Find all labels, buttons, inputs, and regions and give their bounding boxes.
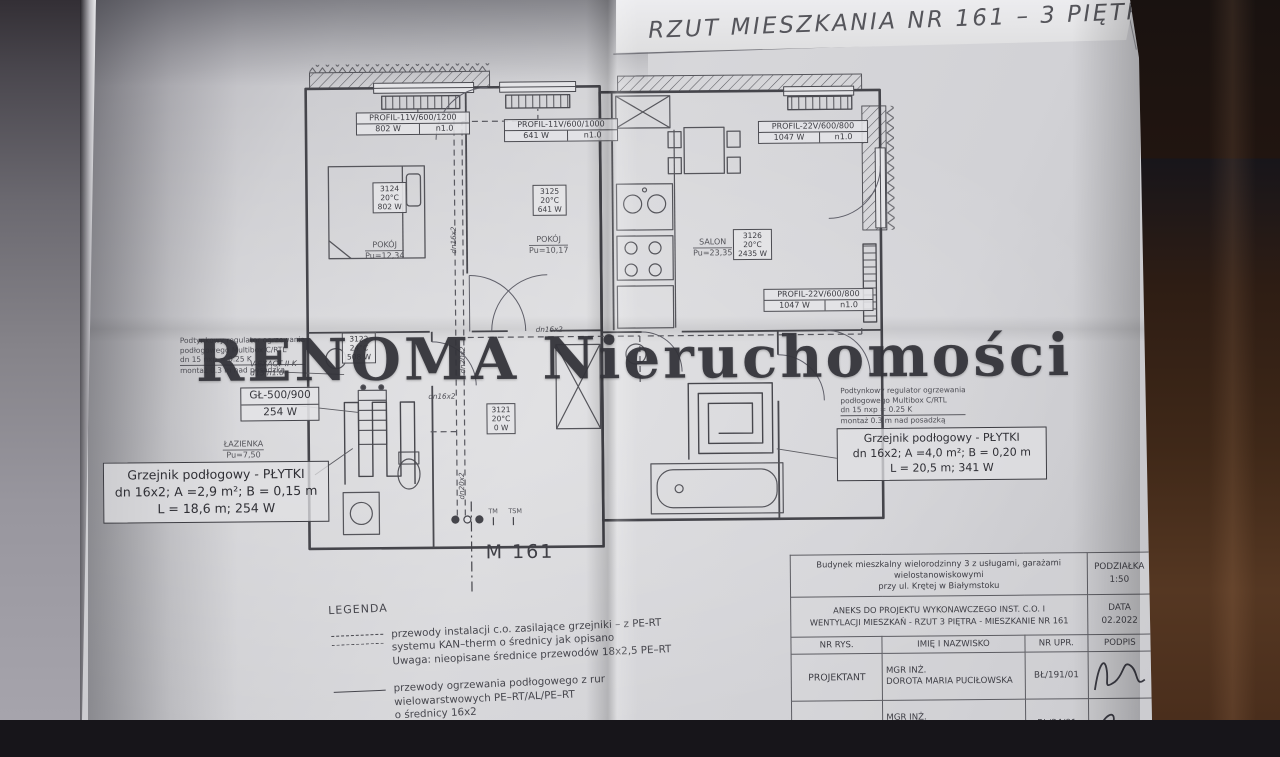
building-description-cell: Budynek mieszkalny wielorodzinny 3 z usł… [790,553,1087,598]
radiator-label-1: PROFIL-11V/600/1200 802 Wn1.0 [356,111,470,135]
fh-line: L = 18,6 m; 254 W [110,500,322,519]
riser-marker-tsm: TSM [508,507,522,515]
thermostat-power: 641 W [538,205,562,214]
note-line: montaż 0.3 m nad posadzką [840,414,965,426]
room-label-lazienka: ŁAZIENKA Pu=7,50 [223,439,265,460]
note-line: podłogowego Multibox C/RTL [840,395,965,406]
riser-marker-tm: TM [488,507,498,515]
radiator-label-3: PROFIL-22V/600/800 1047 Wn1.0 [758,120,868,144]
thermostat-id: 3124 [377,184,401,193]
legend-item-2: przewody ogrzewania podłogowego z rur wi… [331,667,752,725]
legend-symbol-dashed [331,629,384,646]
radiator-flow: n1.0 [420,123,469,133]
person-name: DOROTA MARIA PUCIŁOWSKA [886,676,1021,688]
radiator-power: 1047 W [759,132,820,143]
fh-line: dn 16x2; A =4,0 m²; B = 0,20 m [843,445,1041,462]
fh-line: dn 16x2; A =2,9 m²; B = 0,15 m [110,483,322,502]
person-name: KRAWCZYK [886,723,1021,735]
regulator-note-right: Podtynkowy regulator ogrzewania podłogow… [840,385,966,426]
room-label-pokoj-1: POKÓJ Pu=12,34 [365,240,405,261]
subject-line: WENTYLACJI MIESZKAŃ - RZUT 3 PIĘTRA - MI… [794,615,1084,629]
thermostat-power: 802 W [378,202,402,211]
name-cell: MGR INŻ. DOROTA MARIA PUCIŁOWSKA [882,652,1025,700]
fh-line: Grzejnik podłogowy - PŁYTKI [110,466,322,485]
radiator-power: 641 W [505,131,568,142]
radiator-flow: n1.0 [825,300,872,310]
fh-line: L = 20,5 m; 341 W [843,460,1041,477]
radiator-power: 802 W [357,124,420,135]
thermostat-id: 3126 [738,231,767,240]
legend-symbol-solid [333,683,385,693]
room-area: Pu=12,34 [365,251,404,261]
legend: LEGENDA przewody instalacji c.o. zasilaj… [328,586,753,739]
thermostat-id: 3121 [491,405,510,414]
legend-item-1: przewody instalacji c.o. zasilające grze… [329,613,750,671]
dining-table-symbol [668,127,740,174]
floor-heating-box-right: Grzejnik podłogowy - PŁYTKI dn 16x2; A =… [837,426,1047,480]
towel-radiator-power: 254 W [241,404,319,420]
room-label-pokoj-2: POKÓJ Pu=10,17 [529,235,569,256]
col-header: NR RYS. [791,636,882,654]
fh-line: Grzejnik podłogowy - PŁYTKI [843,431,1041,448]
building-line: Budynek mieszkalny wielorodzinny 3 z usł… [794,557,1084,582]
role-cell: PROJEKTANT [791,653,883,701]
thermostat-temp: 20°C [538,196,562,205]
paper-shadow-right [1072,0,1140,720]
thermostat-3121: 3121 20°C 0 W [486,403,515,434]
thermostat-id: 3125 [537,187,561,196]
unit-number-label: M 161 [486,541,555,564]
role-cell: SPRAWDZAJĄCY [791,700,883,749]
thermostat-temp: 20°C [378,193,402,202]
room-name: SALON [693,237,732,248]
thermostat-3125: 3125 20°C 641 W [532,185,566,216]
room-name: POKÓJ [529,235,568,246]
subject-cell: ANEKS DO PROJEKTU WYKONAWCZEGO INST. C.O… [791,595,1088,638]
floor-heating-box-left: Grzejnik podłogowy - PŁYTKI dn 16x2; A =… [103,461,330,524]
radiator-flow: n1.0 [820,132,867,142]
person-title: MGR INŻ. [886,712,1021,724]
room-name: ŁAZIENKA [223,439,265,450]
radiator-label-4: PROFIL-22V/600/800 1047 Wn1.0 [763,288,873,312]
thermostat-power: 0 W [492,423,511,432]
thermostat-3124: 3124 20°C 802 W [372,182,406,213]
room-area: Pu=10,17 [529,246,568,256]
room-name: POKÓJ [365,240,404,251]
name-cell: MGR INŻ. KRAWCZYK [883,699,1026,748]
thermostat-3126: 3126 20°C 2435 W [733,229,772,260]
paper-sheet: PROFIL-11V/600/1200 802 Wn1.0 PROFIL-11V… [0,0,1280,720]
room-area: Pu=23,35 [693,248,732,258]
thermostat-power: 2435 W [738,249,767,258]
pipe-label: dn16x2 [449,226,458,253]
photo-of-floorplan: PROFIL-11V/600/1200 802 Wn1.0 PROFIL-11V… [0,0,1280,720]
thermostat-temp: 20°C [738,240,767,249]
radiator-power: 1047 W [764,300,825,311]
watermark: RENOMA Nieruchomości [196,321,1073,395]
room-label-salon: SALON Pu=23,35 [693,237,733,258]
col-header: IMIĘ I NAZWISKO [882,635,1025,653]
thermostat-temp: 20°C [491,414,510,423]
building-line: przy ul. Krętej w Białymstoku [794,579,1084,593]
pipe-label: dn20x2 [457,472,466,499]
room-area: Pu=7,50 [223,450,265,460]
